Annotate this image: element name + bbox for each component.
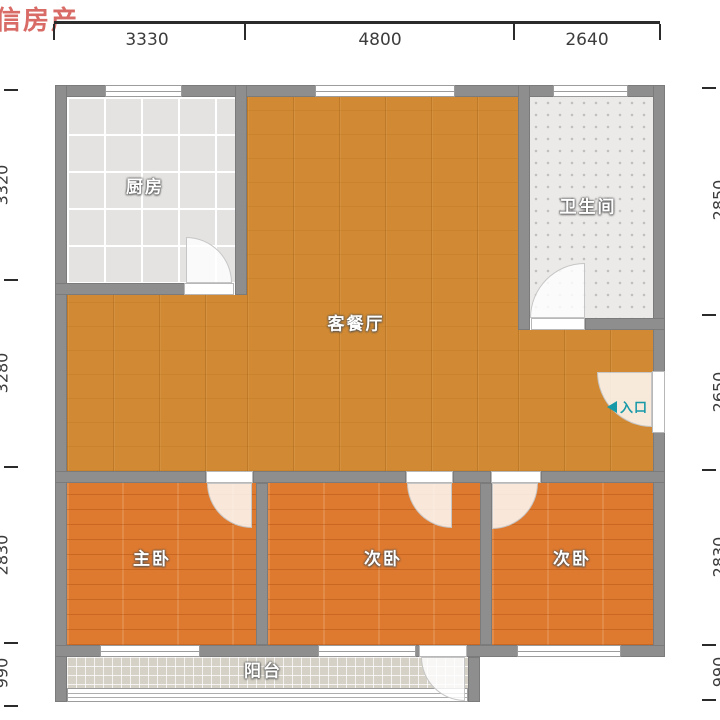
master-bedroom-label: 主卧	[133, 545, 171, 570]
window-living-top	[315, 85, 455, 97]
wall-bathroom-left	[518, 85, 530, 330]
window-kitchen-top	[105, 85, 182, 97]
wall-bedroom-top-1	[55, 471, 206, 483]
dim-label-top-1: 3330	[125, 30, 168, 50]
wall-bedroom-top-3	[453, 471, 491, 483]
wall-bedroom-divider-1	[256, 483, 268, 645]
dim-tick	[659, 24, 661, 40]
third-bedroom-door-leaf	[491, 471, 541, 483]
dim-tick	[702, 469, 716, 471]
dim-line-top	[54, 21, 660, 24]
dim-label-right-1: 2850	[710, 180, 720, 221]
dim-tick	[702, 314, 716, 316]
dim-tick	[513, 24, 515, 40]
balcony-door-leaf	[419, 645, 467, 657]
dim-label-right-3: 2830	[710, 537, 720, 578]
living-dining-floor-center	[247, 97, 518, 471]
master-bedroom-door-leaf	[206, 471, 253, 483]
dim-label-top-3: 2640	[565, 30, 608, 50]
living-dining-floor-left	[67, 295, 247, 471]
third-bedroom-label: 次卧	[553, 545, 591, 570]
entrance-door-leaf	[652, 371, 665, 433]
wall-outer-right-lower	[653, 432, 665, 650]
dim-tick	[244, 24, 246, 40]
wall-balcony-right	[468, 657, 480, 702]
dim-label-top-2: 4800	[358, 30, 401, 50]
dim-tick	[4, 466, 18, 468]
bathroom-door-leaf	[531, 318, 585, 330]
dim-tick	[4, 89, 18, 91]
entrance-marker: 入口	[607, 397, 648, 416]
floor-plan-canvas: 信房产 3330 4800 2640 3320 3280 2830 990 28…	[0, 0, 720, 720]
second-bedroom-door-leaf	[406, 471, 453, 483]
entry-label: 入口	[620, 397, 648, 416]
wall-kitchen-bottom	[55, 283, 185, 295]
dim-label-right-2: 2650	[710, 372, 720, 413]
watermark-brand-text: 信房产	[0, 0, 79, 37]
wall-bathroom-bottom	[585, 318, 665, 330]
dim-tick	[53, 24, 55, 40]
dim-label-left-3: 2830	[0, 535, 12, 576]
balcony-label: 阳台	[244, 657, 282, 682]
wall-bedroom-top-2	[253, 471, 406, 483]
kitchen-door-leaf	[184, 283, 234, 295]
entry-arrow-icon	[607, 401, 617, 413]
bathroom-label: 卫生间	[560, 193, 617, 218]
dim-tick	[702, 87, 716, 89]
window-master-bedroom	[100, 645, 200, 657]
wall-bedroom-top-4	[541, 471, 665, 483]
second-bedroom-label: 次卧	[364, 545, 402, 570]
dim-tick	[702, 644, 716, 646]
living-dining-label: 客餐厅	[328, 310, 385, 335]
wall-outer-left	[55, 85, 67, 702]
balcony-railing-window	[67, 688, 468, 702]
dim-label-right-4: 990	[710, 657, 720, 688]
dim-tick	[4, 279, 18, 281]
kitchen-label: 厨房	[126, 173, 164, 198]
window-third-bedroom	[517, 645, 621, 657]
dim-label-left-2: 3280	[0, 353, 12, 394]
window-second-bedroom	[318, 645, 416, 657]
wall-kitchen-right	[235, 85, 247, 295]
dim-tick	[4, 705, 18, 707]
dim-label-left-4: 990	[0, 658, 12, 689]
window-bathroom-top	[553, 85, 628, 97]
dim-tick	[4, 642, 18, 644]
wall-bedroom-divider-2	[480, 483, 492, 645]
dim-tick	[702, 699, 716, 701]
dim-label-left-1: 3320	[0, 165, 12, 206]
